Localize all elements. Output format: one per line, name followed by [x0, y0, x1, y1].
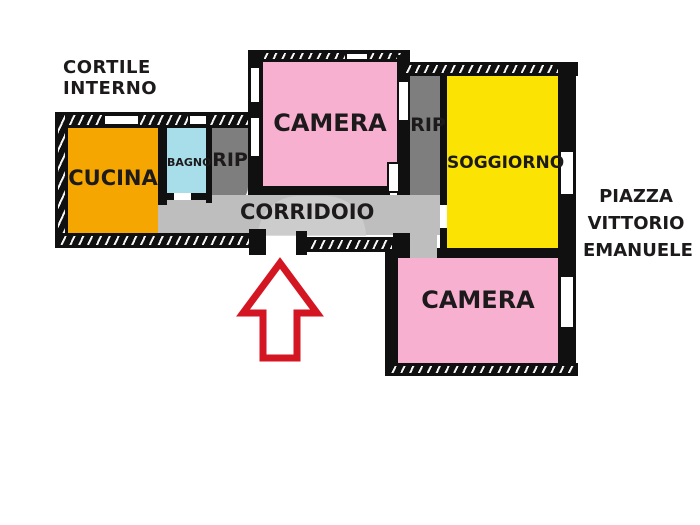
label-rip-1: RIP	[209, 151, 251, 171]
wall-corridoio-bottom	[305, 237, 395, 252]
entrance-jamb-left	[249, 229, 266, 255]
door-camera-corridoio	[387, 162, 400, 193]
label-cucina: CUCINA	[68, 167, 158, 189]
wall-left-block-bottom	[55, 233, 252, 248]
wall-camera-top-top	[248, 50, 410, 62]
street-label: PIAZZA VITTORIO EMANUELE	[583, 183, 689, 264]
window-camera-top-wall	[345, 52, 369, 61]
door-gap-bagno	[174, 193, 191, 200]
courtyard-label: CORTILE INTERNO	[63, 57, 248, 99]
street-label-line2: VITTORIO	[583, 210, 689, 237]
wall-cucina-right	[158, 128, 167, 205]
wall-corridoio-post	[393, 233, 410, 258]
entrance-arrow-icon	[235, 255, 327, 367]
street-label-line1: PIAZZA	[583, 183, 689, 210]
door-gap-camera-rip	[399, 82, 408, 120]
window-camera-left-1	[249, 66, 261, 104]
window-camera-bottom	[559, 275, 575, 329]
floor-plan: CORTILE INTERNO PIAZZA VITTORIO EMANUELE	[0, 0, 700, 525]
window-bagno-top	[188, 114, 208, 126]
wall-left-block-left	[55, 112, 68, 248]
street-label-line3: EMANUELE	[583, 237, 689, 264]
corridoio-stub	[408, 235, 437, 258]
wall-camera-bottom-bottom	[385, 363, 578, 376]
corridoio-door-notch	[158, 205, 167, 235]
label-corridoio: CORRIDOIO	[240, 201, 365, 223]
entrance-arrow-shape	[243, 263, 317, 358]
wall-left-block-top	[55, 112, 260, 128]
door-gap-soggiorno	[440, 205, 447, 228]
wall-soggiorno-top	[400, 62, 578, 76]
label-soggiorno: SOGGIORNO	[447, 155, 558, 173]
wall-camera-top-bottom	[248, 186, 390, 195]
label-camera-bottom: CAMERA	[398, 288, 558, 313]
label-rip-2: RIP	[407, 116, 449, 136]
wall-camera-bottom-top	[437, 248, 562, 258]
wall-camera-bottom-left	[385, 248, 398, 376]
label-camera-top: CAMERA	[263, 111, 397, 136]
label-bagno: BAGNO	[167, 157, 208, 169]
window-cucina-top	[103, 114, 140, 126]
